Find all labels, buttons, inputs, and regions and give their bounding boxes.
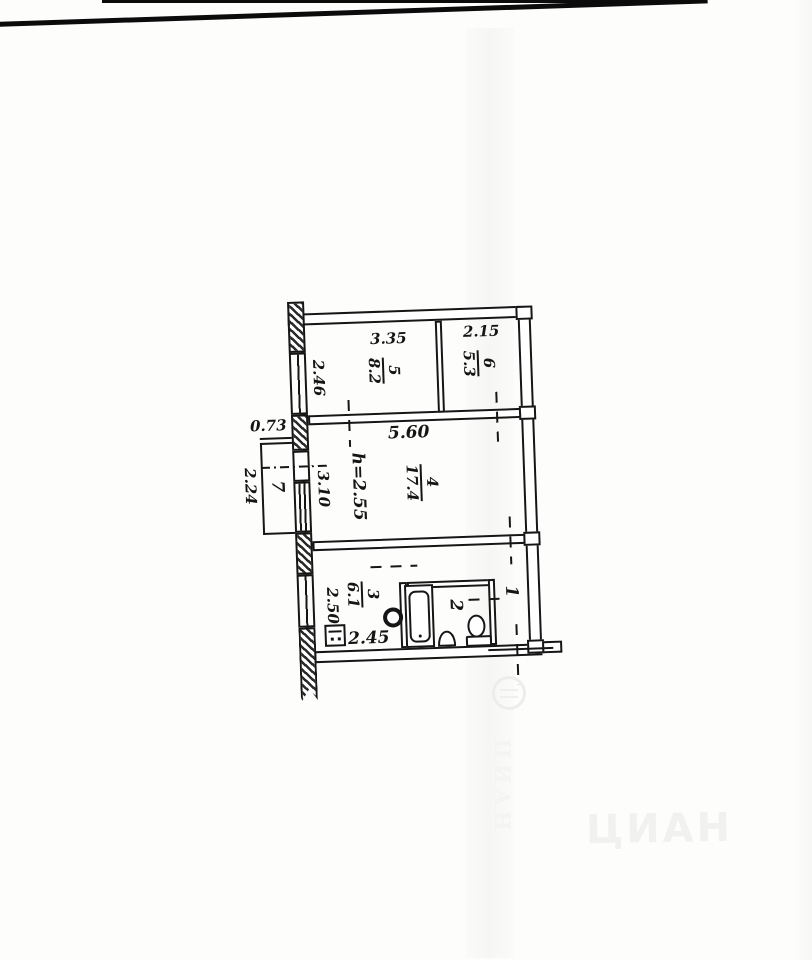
room-5-label: 5 8.2	[365, 357, 401, 384]
wall-hatch-block-bottom-left-break	[298, 627, 318, 701]
door-axis-bathroom	[468, 598, 503, 601]
door-axis-kitchen	[370, 565, 417, 569]
dim-balcony-width: 0.73	[250, 416, 287, 435]
scan-noise-right-edge	[792, 0, 812, 960]
dim-room3-width: 2.45	[348, 628, 390, 649]
room-5-area: 8.2	[365, 358, 383, 385]
room-6-area: 5.3	[460, 350, 478, 377]
dim-room5-depth: 2.46	[309, 359, 328, 396]
wall-interior-room5-room6	[435, 321, 445, 413]
room-3-area: 6.1	[344, 582, 362, 609]
stove-icon-dot-1	[331, 638, 334, 641]
dim-room5-width: 3.35	[370, 329, 407, 348]
room-4-area: 17.4	[403, 464, 421, 501]
window-room5	[289, 352, 308, 415]
scanned-floorplan-page: { "rooms": { "r5": {"number": "5", "area…	[0, 0, 812, 960]
dim-room3-depth: 2.50	[323, 587, 342, 624]
toilet-base-icon	[466, 635, 492, 647]
dim-room6-width: 2.15	[463, 322, 500, 341]
room-1-label: 1	[501, 585, 521, 598]
stove-icon-line	[329, 630, 342, 632]
room-6-number: 6	[477, 350, 497, 377]
wall-hatch-block-left-2	[291, 414, 309, 451]
stove-icon	[324, 624, 346, 647]
room-6-label: 6 5.3	[460, 350, 496, 377]
scan-page-edge-top-line	[102, 0, 698, 3]
wall-pier-right-mid2	[523, 531, 540, 546]
stove-icon-dot-2	[338, 637, 341, 640]
room-7-label: 7	[267, 480, 287, 493]
dim-room4-depth: 3.10	[314, 470, 333, 507]
scan-page-edge-diagonal-line	[0, 0, 708, 27]
dim-ceiling-height: h=2.55	[347, 452, 369, 521]
wall-exterior-right	[517, 306, 542, 654]
wall-hatch-block-top-left	[287, 301, 306, 353]
dim-room4-width: 5.60	[388, 422, 430, 443]
watermark-cian-logo: ЦИАН	[586, 805, 734, 854]
room-3-number: 3	[361, 581, 381, 608]
balcony-dimension-line	[260, 437, 292, 440]
window-kitchen	[297, 574, 316, 628]
room-2-label: 2	[446, 599, 466, 612]
wall-interior-room4-bottom	[312, 534, 525, 551]
wall-hatch-block-left-3	[295, 532, 313, 575]
wall-pier-right-mid1	[519, 405, 536, 420]
floor-plan: 5 8.2 6 5.3 4 17.4 3 6.1 2 1 7 3.35 2.15…	[233, 279, 578, 720]
balcony-door-window	[293, 481, 312, 533]
bathtub-drain-icon	[419, 634, 422, 637]
room-3-label: 3 6.1	[344, 581, 380, 608]
wall-pier-top-right	[515, 305, 532, 320]
dim-balcony-depth: 2.24	[241, 468, 260, 505]
room-4-label: 4 17.4	[403, 464, 440, 502]
washbasin-icon	[438, 630, 457, 647]
room-5-number: 5	[382, 357, 402, 384]
watermark-vertical-text: ЦИАН	[438, 772, 568, 802]
room-4-number: 4	[420, 464, 440, 501]
